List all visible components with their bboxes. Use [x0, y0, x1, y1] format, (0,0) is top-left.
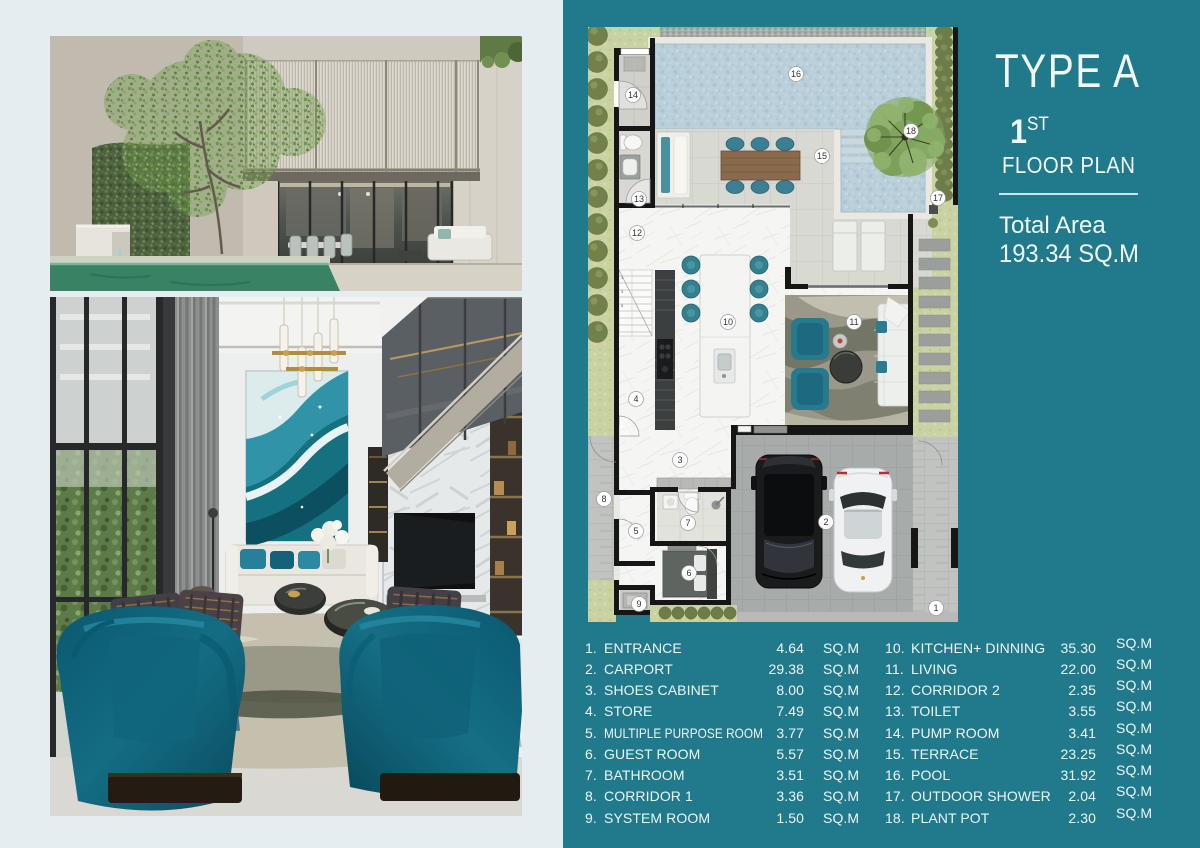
svg-text:9: 9: [636, 599, 641, 609]
svg-text:3: 3: [677, 455, 682, 465]
svg-text:11: 11: [849, 317, 858, 327]
svg-text:12: 12: [632, 228, 642, 238]
svg-text:4: 4: [633, 394, 638, 404]
svg-text:7: 7: [685, 518, 690, 528]
svg-text:18: 18: [906, 126, 916, 136]
svg-text:17: 17: [933, 193, 943, 203]
svg-text:6: 6: [686, 568, 691, 578]
svg-text:15: 15: [817, 151, 827, 161]
svg-text:14: 14: [628, 90, 638, 100]
svg-text:8: 8: [601, 494, 606, 504]
svg-text:16: 16: [791, 69, 801, 79]
svg-text:1: 1: [933, 603, 938, 613]
svg-text:5: 5: [633, 526, 638, 536]
svg-text:2: 2: [823, 517, 828, 527]
svg-text:13: 13: [634, 194, 644, 204]
svg-text:10: 10: [723, 317, 733, 327]
